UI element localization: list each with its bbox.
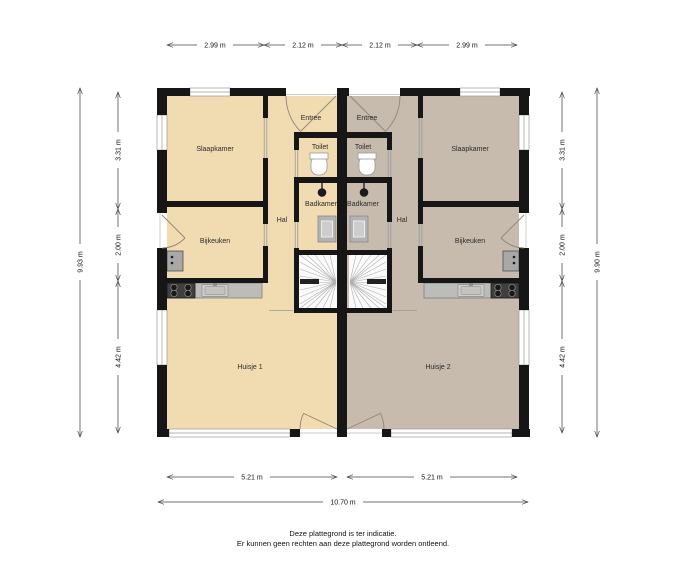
dim-top-2: 2.12 m	[292, 43, 314, 50]
dim-right-1: 3.31 m	[560, 139, 567, 161]
stairs-unit1-icon	[299, 255, 337, 308]
room-label-huisje-1: Huisje 1	[237, 364, 262, 371]
window	[460, 88, 500, 96]
window	[519, 115, 529, 150]
toilet-icon-unit1	[310, 153, 328, 175]
dim-left-1: 3.31 m	[116, 139, 123, 161]
washing-machine-icon-unit1	[167, 251, 183, 271]
dim-left-outer: 9.93 m	[78, 251, 85, 273]
room-label-toilet-2: Toilet	[355, 144, 371, 151]
washbasin-icon-unit1	[318, 216, 336, 242]
room-label-bijkeuken-1: Bijkeuken	[200, 238, 230, 245]
room-label-huisje-2: Huisje 2	[425, 364, 450, 371]
footer-line-1: Deze plattegrond is ter indicatie.	[289, 529, 396, 538]
party-wall	[337, 96, 347, 429]
dim-bottom-2: 5.21 m	[421, 475, 443, 482]
toilet-icon-unit2	[358, 153, 376, 175]
window	[519, 310, 529, 365]
room-label-badkamer-2: Badkamer	[347, 201, 380, 208]
stove-icon	[491, 283, 519, 298]
dim-bottom-1: 5.21 m	[241, 475, 263, 482]
kitchen-counter-unit2	[424, 283, 519, 298]
kitchen-counter-unit1	[167, 283, 262, 298]
room-label-hal-1: Hal	[277, 217, 288, 224]
room-label-toilet-1: Toilet	[312, 144, 328, 151]
door-opening	[349, 88, 400, 96]
footer: Deze plattegrond is ter indicatie. Er ku…	[237, 529, 449, 548]
stove-icon	[167, 283, 195, 298]
window	[391, 429, 512, 437]
dim-top-3: 2.12 m	[369, 43, 391, 50]
sink-icon	[458, 283, 484, 297]
door-opening	[300, 429, 337, 437]
room-label-hal-2: Hal	[397, 217, 408, 224]
room-label-badkamer-1: Badkamer	[305, 201, 338, 208]
dim-right-3: 4.42 m	[560, 346, 567, 368]
footer-line-2: Er kunnen geen rechten aan deze plattegr…	[237, 539, 449, 548]
window	[157, 115, 167, 150]
dim-right-outer: 9.90 m	[595, 251, 602, 273]
window	[169, 429, 290, 437]
dim-top-4: 2.99 m	[456, 43, 478, 50]
dim-right-2: 2.00 m	[560, 234, 567, 256]
dim-top-1: 2.99 m	[204, 43, 226, 50]
door-opening	[286, 88, 337, 96]
room-label-slaapkamer-2: Slaapkamer	[451, 146, 489, 153]
washbasin-icon-unit2	[350, 216, 368, 242]
dim-left-3: 4.42 m	[116, 346, 123, 368]
dim-bottom-outer: 10.70 m	[330, 500, 355, 507]
room-label-entree-1: Entree	[301, 115, 322, 122]
floorplan: Slaapkamer Entree Toilet Badkamer Hal Bi…	[0, 0, 679, 584]
dim-left-2: 2.00 m	[116, 234, 123, 256]
room-label-bijkeuken-2: Bijkeuken	[455, 238, 485, 245]
sink-icon	[202, 283, 228, 297]
washing-machine-icon-unit2	[503, 251, 519, 271]
door-opening	[347, 429, 382, 437]
room-label-slaapkamer-1: Slaapkamer	[196, 146, 234, 153]
room-label-entree-2: Entree	[357, 115, 378, 122]
stairs-unit2-icon	[349, 255, 387, 308]
window	[157, 310, 167, 365]
window	[190, 88, 230, 96]
